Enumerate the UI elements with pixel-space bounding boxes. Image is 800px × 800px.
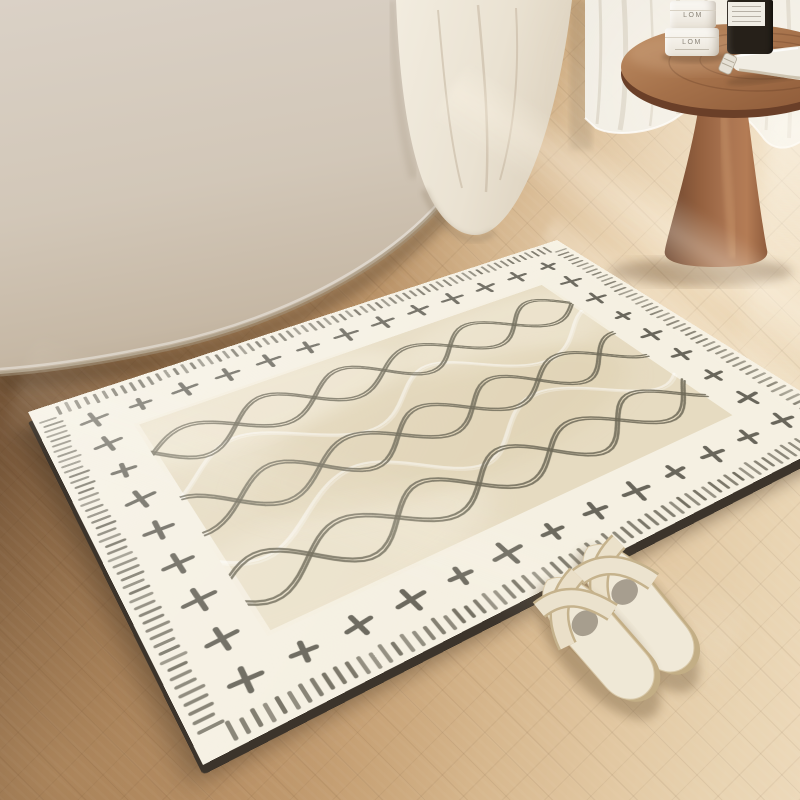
slippers-svg xyxy=(0,0,800,800)
bathroom-scene: LOM LOM xyxy=(0,0,800,800)
